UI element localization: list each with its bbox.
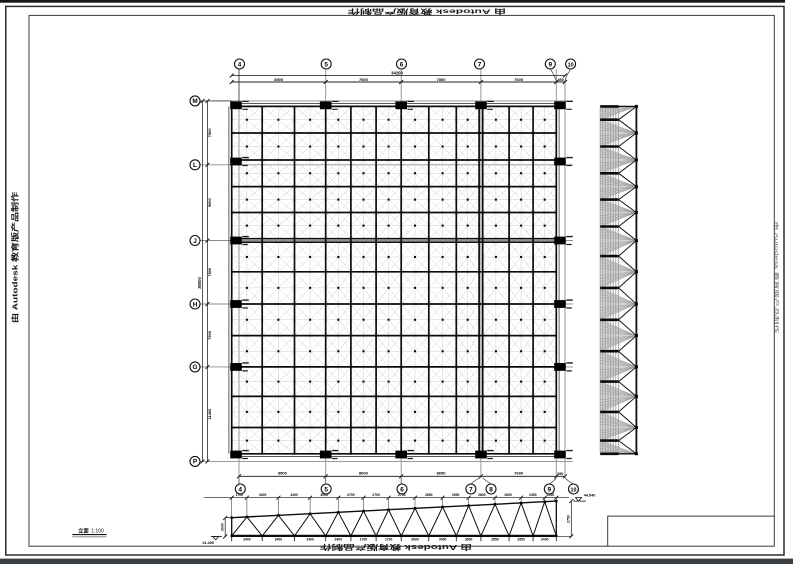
- svg-text:7500: 7500: [207, 128, 212, 138]
- svg-text:P: P: [193, 459, 198, 466]
- svg-text:5: 5: [324, 61, 328, 68]
- svg-text:2700: 2700: [372, 493, 380, 497]
- svg-text:8500: 8500: [274, 77, 284, 82]
- svg-text:2400: 2400: [541, 538, 549, 542]
- svg-text:8000: 8000: [359, 471, 369, 476]
- svg-text:9000: 9000: [207, 197, 212, 207]
- svg-text:2450: 2450: [529, 493, 537, 497]
- svg-text:L: L: [193, 162, 197, 169]
- svg-text:2750: 2750: [567, 515, 571, 523]
- svg-text:3000: 3000: [439, 538, 447, 542]
- svg-text:3000: 3000: [320, 493, 328, 497]
- svg-text:2700: 2700: [347, 493, 355, 497]
- svg-text:1200: 1200: [547, 493, 555, 497]
- svg-text:2850: 2850: [425, 493, 433, 497]
- svg-text:8650: 8650: [437, 471, 447, 476]
- svg-text:7: 7: [469, 486, 473, 493]
- svg-text:2600: 2600: [504, 493, 512, 497]
- svg-text:由 Autodesk 教育版产品制作: 由 Autodesk 教育版产品制作: [320, 543, 472, 552]
- svg-text:10: 10: [571, 487, 577, 493]
- svg-text:2400: 2400: [335, 538, 343, 542]
- svg-text:8: 8: [489, 486, 493, 493]
- svg-text:3000: 3000: [411, 538, 419, 542]
- svg-text:7800: 7800: [437, 77, 447, 82]
- svg-text:由 Autodesk 教育版产品制作: 由 Autodesk 教育版产品制作: [773, 222, 780, 335]
- svg-text:10: 10: [568, 62, 574, 68]
- svg-text:7600: 7600: [514, 471, 524, 476]
- svg-text:1700: 1700: [236, 493, 244, 497]
- svg-text:850: 850: [557, 472, 563, 476]
- svg-text:3000: 3000: [221, 523, 225, 531]
- svg-text:4: 4: [238, 61, 242, 68]
- svg-text:7: 7: [478, 61, 482, 68]
- svg-text:1700: 1700: [385, 538, 393, 542]
- svg-text:7500: 7500: [207, 330, 212, 340]
- svg-text:G: G: [193, 364, 198, 371]
- svg-text:2850: 2850: [517, 538, 525, 542]
- svg-text:3400: 3400: [290, 493, 298, 497]
- svg-text:由 Autodesk 教育版产品制作: 由 Autodesk 教育版产品制作: [347, 8, 506, 17]
- svg-text:由 Autodesk 教育版产品制作: 由 Autodesk 教育版产品制作: [11, 191, 20, 323]
- svg-text:1:100: 1:100: [91, 528, 104, 534]
- svg-text:7500: 7500: [359, 77, 369, 82]
- svg-text:J: J: [193, 238, 197, 245]
- svg-text:7600: 7600: [514, 77, 524, 82]
- svg-text:11400: 11400: [207, 408, 212, 420]
- svg-text:H: H: [193, 301, 198, 308]
- svg-text:44.540: 44.540: [584, 493, 596, 497]
- svg-text:2950: 2950: [452, 493, 460, 497]
- svg-text:8500: 8500: [278, 471, 288, 476]
- svg-text:2700: 2700: [398, 493, 406, 497]
- svg-text:2850: 2850: [491, 538, 499, 542]
- svg-text:34200: 34200: [391, 70, 403, 75]
- svg-text:7500: 7500: [207, 267, 212, 277]
- svg-text:2400: 2400: [306, 538, 314, 542]
- svg-text:850: 850: [558, 78, 564, 82]
- svg-text:3000: 3000: [465, 538, 473, 542]
- svg-text:9: 9: [549, 61, 553, 68]
- svg-text:3400: 3400: [275, 538, 283, 542]
- svg-text:36000: 36000: [197, 277, 202, 289]
- svg-text:立面: 立面: [78, 526, 88, 534]
- svg-text:2800: 2800: [478, 493, 486, 497]
- svg-text:6: 6: [400, 61, 404, 68]
- svg-text:M: M: [192, 98, 197, 105]
- svg-text:3400: 3400: [259, 493, 267, 497]
- svg-text:3400: 3400: [243, 538, 251, 542]
- svg-text:1700: 1700: [360, 538, 368, 542]
- svg-text:41.400: 41.400: [202, 541, 214, 545]
